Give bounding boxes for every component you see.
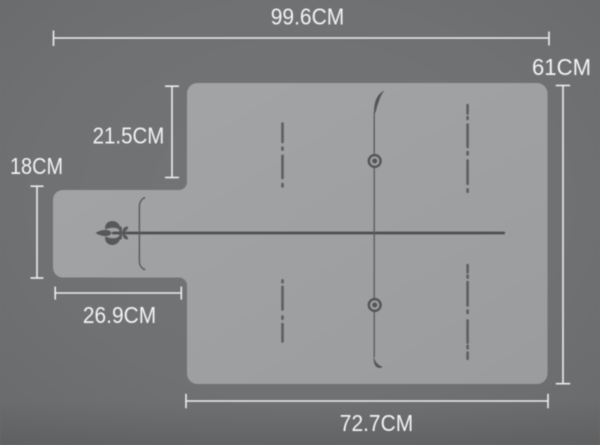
svg-text:72.7CM: 72.7CM (340, 410, 413, 436)
svg-text:21.5CM: 21.5CM (93, 123, 165, 149)
svg-text:99.6CM: 99.6CM (271, 3, 345, 29)
svg-text:26.9CM: 26.9CM (83, 302, 156, 328)
svg-text:61CM: 61CM (532, 54, 591, 80)
svg-text:18CM: 18CM (10, 153, 63, 179)
